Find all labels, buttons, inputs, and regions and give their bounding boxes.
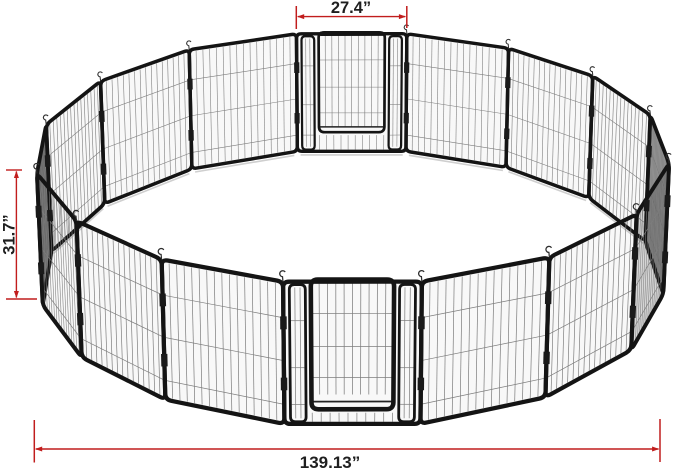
svg-text:31.7”: 31.7” [1,214,19,254]
svg-text:139.13”: 139.13” [300,453,361,470]
svg-text:27.4”: 27.4” [331,0,371,17]
